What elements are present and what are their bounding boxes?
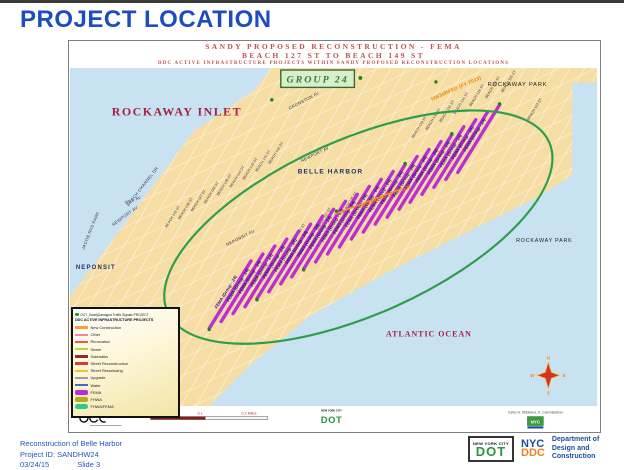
legend-signals-row: DOT_SandyDamaged Traffic Signals PROJECT [75, 311, 176, 318]
compass-s: S [547, 391, 550, 396]
legend-item-label: Renovation [91, 339, 111, 344]
scale-tick: 0.2 Miles [241, 412, 256, 416]
legend-item-label: FEMA [91, 390, 102, 395]
group-24-label: GROUP 24 [286, 74, 348, 85]
page-title: PROJECT LOCATION [20, 6, 272, 34]
compass-w: W [530, 373, 535, 378]
legend-item: Water [75, 382, 176, 389]
traffic-signal-dot [255, 298, 258, 301]
legend-swatch [75, 326, 88, 328]
map-frame: SANDY PROPOSED RECONSTRUCTION - FEMA BEA… [68, 40, 601, 433]
traffic-signal-dot [270, 98, 273, 101]
traffic-signal-dot [434, 80, 437, 83]
legend-item-label: Water [91, 383, 101, 388]
legend-swatch [75, 404, 88, 409]
legend-item-label: FHWA/FEMA [91, 404, 114, 409]
footer-logos: NEW YORK CITY DOT NYC DDC Department of … [468, 436, 599, 462]
area-label-atlantic-ocean: ATLANTIC OCEAN [386, 330, 472, 339]
legend-swatch [75, 397, 88, 402]
nyc-dot-logo-main: DOT [476, 446, 506, 458]
legend-item: Other [75, 331, 176, 338]
slide: PROJECT LOCATION SANDY PROPOSED RECONSTR… [0, 0, 624, 470]
footer-info: Reconstruction of Belle Harbor Project I… [20, 439, 122, 470]
footer-project-name: Reconstruction of Belle Harbor [20, 439, 122, 450]
compass-n: N [547, 355, 550, 360]
traffic-signal-dot [302, 268, 305, 271]
legend-item: Renovation [75, 338, 176, 345]
nyc-ddc-logo: NYC DDC [521, 440, 545, 459]
legend-item-label: FHWA [91, 397, 102, 402]
area-label-rockaway-inlet: ROCKAWAY INLET [112, 105, 242, 119]
map-header: SANDY PROPOSED RECONSTRUCTION - FEMA BEA… [69, 43, 598, 67]
legend-item: Sidewalks [75, 353, 176, 360]
east-channel-water [572, 83, 597, 406]
traffic-signal-dot [207, 328, 210, 331]
footer-project-id: Project ID: SANDHW24 [20, 450, 122, 461]
area-label-rockaway-park: ROCKAWAY PARK [516, 238, 572, 244]
nyc-dot-logo: NEW YORK CITY DOT [468, 436, 514, 462]
legend-item-label: Sewer [91, 347, 102, 352]
legend-swatch [75, 348, 88, 350]
map-legend: DOT_SandyDamaged Traffic Signals PROJECT… [71, 307, 180, 418]
scale-tick: 0.1 [198, 412, 203, 416]
traffic-signal-dot [335, 210, 338, 213]
legend-item: Upgrade [75, 374, 176, 381]
traffic-signal-legend-dot [75, 313, 79, 317]
traffic-signal-dot [498, 102, 501, 105]
legend-item-label: Street Resurfacing [91, 368, 123, 373]
department-name: Department of Design and Construction [552, 436, 599, 462]
map-title-line2: BEACH 127 ST TO BEACH 149 ST [69, 52, 598, 61]
nyc-dot-mini-logo: NEW YORK CITY DOT [321, 409, 342, 426]
map-title-line3: DDC ACTIVE INFRASTRUCTURE PROJECTS WITHI… [69, 60, 598, 67]
commissioner-credit: Carter H. Strickland, Jr., Commissioner [508, 411, 563, 415]
legend-swatch [75, 377, 88, 379]
nyc-mini-logo-bar [527, 426, 543, 428]
nyc-mini-logo: NYC [527, 417, 543, 429]
department-line2: Design and [552, 445, 599, 454]
legend-item-label: Sidewalks [91, 354, 109, 359]
legend-swatch [75, 384, 88, 386]
legend-item-label: Street Reconstruction [91, 361, 128, 366]
area-label-rockaway-park: ROCKAWAY PARK [488, 82, 548, 88]
legend-signals-label: DOT_SandyDamaged Traffic Signals PROJECT [81, 313, 149, 317]
legend-item: Street Reconstruction [75, 360, 176, 367]
compass-e: E [563, 373, 566, 378]
nyc-dot-mini-top: NEW YORK CITY [321, 409, 342, 413]
legend-item-label: Other [91, 332, 101, 337]
legend-item: FHWA/FEMA [75, 403, 176, 410]
legend-swatch [75, 334, 88, 336]
legend-item: FEMA [75, 389, 176, 396]
legend-item-label: New Construction [91, 325, 122, 330]
nyc-ddc-logo-ddc: DDC [521, 449, 545, 459]
legend-item: Sewer [75, 346, 176, 353]
slide-top-edge [0, 0, 624, 3]
legend-item: Street Resurfacing [75, 367, 176, 374]
footer-date: 03/24/15 [20, 460, 49, 469]
legend-item: New Construction [75, 324, 176, 331]
legend-swatch [75, 341, 88, 343]
scale-bar-empty [205, 417, 268, 420]
footer-slide-number: Slide 3 [77, 460, 100, 469]
traffic-signal-dot [450, 132, 453, 135]
legend-swatch [75, 362, 88, 364]
department-line1: Department of [552, 436, 599, 445]
department-line3: Construction [552, 453, 599, 462]
legend-swatch [75, 390, 88, 395]
area-label-neponsit: NEPONSIT [76, 265, 116, 271]
footer-date-row: 03/24/15Slide 3 [20, 460, 122, 470]
legend-swatch [75, 355, 88, 357]
legend-swatch [75, 370, 88, 372]
traffic-signal-dot [403, 162, 406, 165]
legend-item: FHWA [75, 396, 176, 403]
nyc-dot-mini-main: DOT [321, 415, 342, 426]
nyc-mini-logo-text: NYC [531, 419, 541, 424]
traffic-signal-dot [358, 76, 362, 80]
area-label-belle-harbor: BELLE HARBOR [298, 168, 364, 175]
legend-item-label: Upgrade [91, 375, 106, 380]
